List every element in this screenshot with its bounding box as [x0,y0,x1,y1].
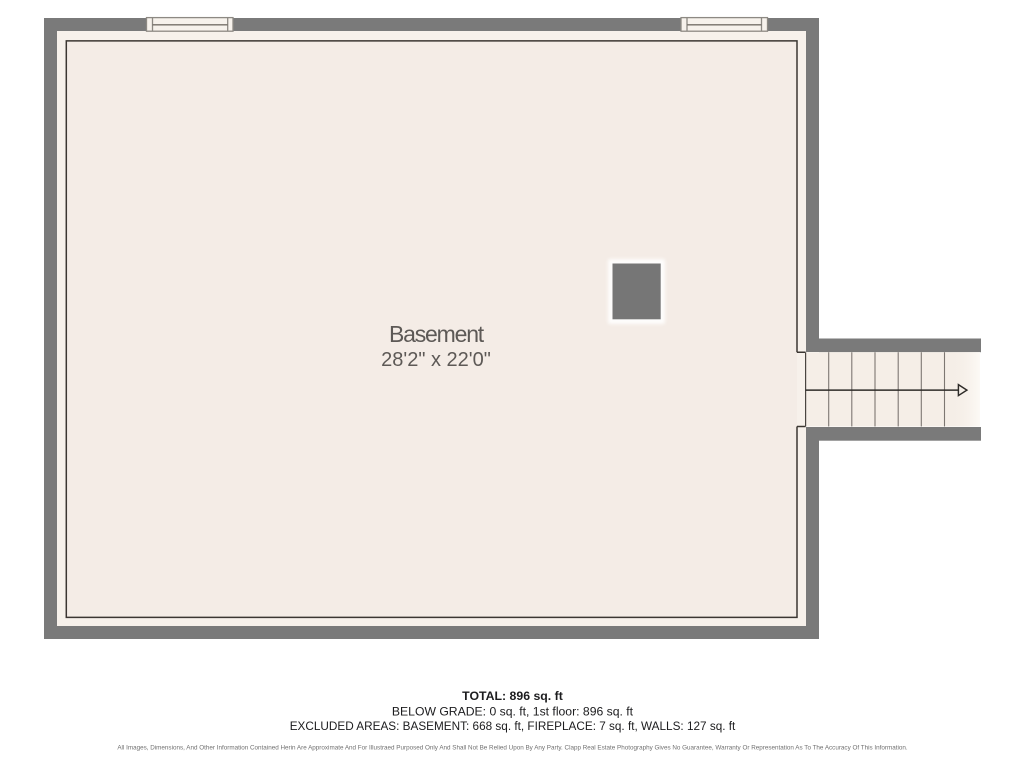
svg-text:EXCLUDED AREAS: BASEMENT: 668: EXCLUDED AREAS: BASEMENT: 668 sq. ft, FI… [290,720,736,733]
svg-text:Basement: Basement [389,321,485,347]
svg-text:BELOW GRADE: 0 sq. ft, 1st flo: BELOW GRADE: 0 sq. ft, 1st floor: 896 sq… [392,705,634,719]
svg-text:TOTAL: 896 sq. ft: TOTAL: 896 sq. ft [462,689,563,703]
svg-text:All Images, Dimensions, And Ot: All Images, Dimensions, And Other Inform… [117,745,908,752]
svg-text:28'2" x 22'0": 28'2" x 22'0" [381,349,491,371]
